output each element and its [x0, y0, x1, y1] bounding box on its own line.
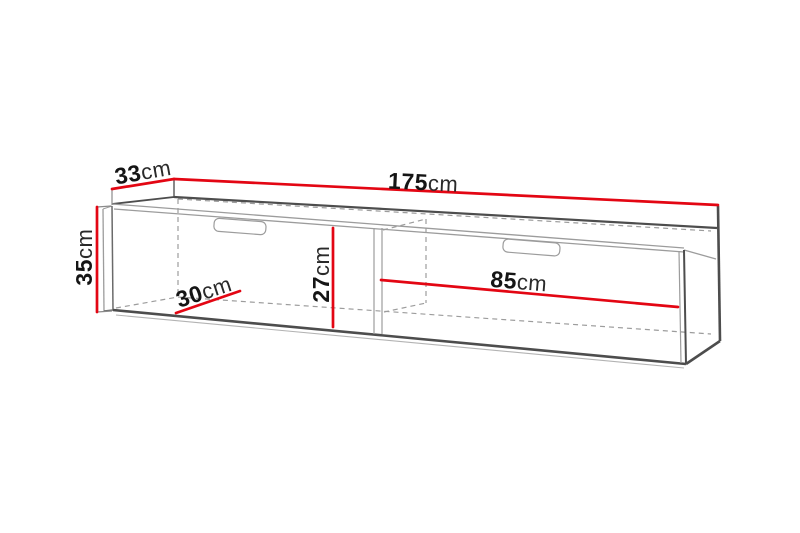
top-panel-edges [112, 204, 716, 259]
dimension-label-inner-height: 27 cm [308, 246, 334, 303]
width-unit: cm [427, 170, 458, 196]
furniture-dimension-diagram: 33 cm 175 cm 35 cm 27 cm 30 cm 85 cm [0, 0, 800, 533]
dimension-label-width: 175 cm [388, 167, 459, 196]
cabinet-drawing-canvas: 33 cm 175 cm 35 cm 27 cm 30 cm 85 cm [0, 0, 800, 533]
top-left-depth-edge [112, 197, 174, 204]
inner-depth-unit: cm [198, 271, 235, 304]
left-panel-front-edge [112, 206, 113, 310]
dimension-label-inner-depth: 30 cm [173, 270, 235, 312]
left-panel-outer-edge [103, 209, 104, 311]
hidden-interior-edges [116, 199, 711, 334]
height-value: 35 [71, 259, 97, 286]
back-panel-right-edge [718, 206, 720, 341]
depth-unit: cm [139, 155, 173, 185]
inner-width-unit: cm [516, 269, 548, 296]
front-bottom-edge [113, 310, 686, 364]
left-flap-handle-recess [214, 218, 267, 235]
width-value: 175 [388, 167, 429, 195]
front-right-corner-edge [684, 250, 686, 364]
handle-recesses [214, 218, 561, 256]
dimension-extension-ticks [97, 189, 112, 312]
height-bottom-tick [97, 311, 112, 312]
bottom-left-depth-hidden-edge [116, 297, 178, 308]
back-wall-panel-edges [112, 179, 720, 341]
dimension-label-height: 35 cm [71, 229, 97, 286]
top-panel-right-edge [684, 250, 716, 259]
bottom-right-depth-edge [686, 341, 720, 364]
inner-height-value: 27 [308, 276, 334, 303]
divider-bottom-depth-hidden-edge [384, 303, 426, 312]
dimension-label-inner-width: 85 cm [489, 266, 548, 297]
height-unit: cm [72, 229, 97, 259]
dimension-label-depth: 33 cm [113, 154, 174, 189]
divider-top-depth-hidden-edge [383, 219, 426, 230]
left-side-panel-edges [103, 206, 113, 311]
bottom-panel-under-edge [116, 315, 684, 368]
bottom-and-right-edges [113, 250, 720, 368]
top-panel-front-inner-edge [114, 209, 684, 252]
inner-height-unit: cm [309, 246, 334, 276]
inner-width-value: 85 [489, 266, 518, 294]
